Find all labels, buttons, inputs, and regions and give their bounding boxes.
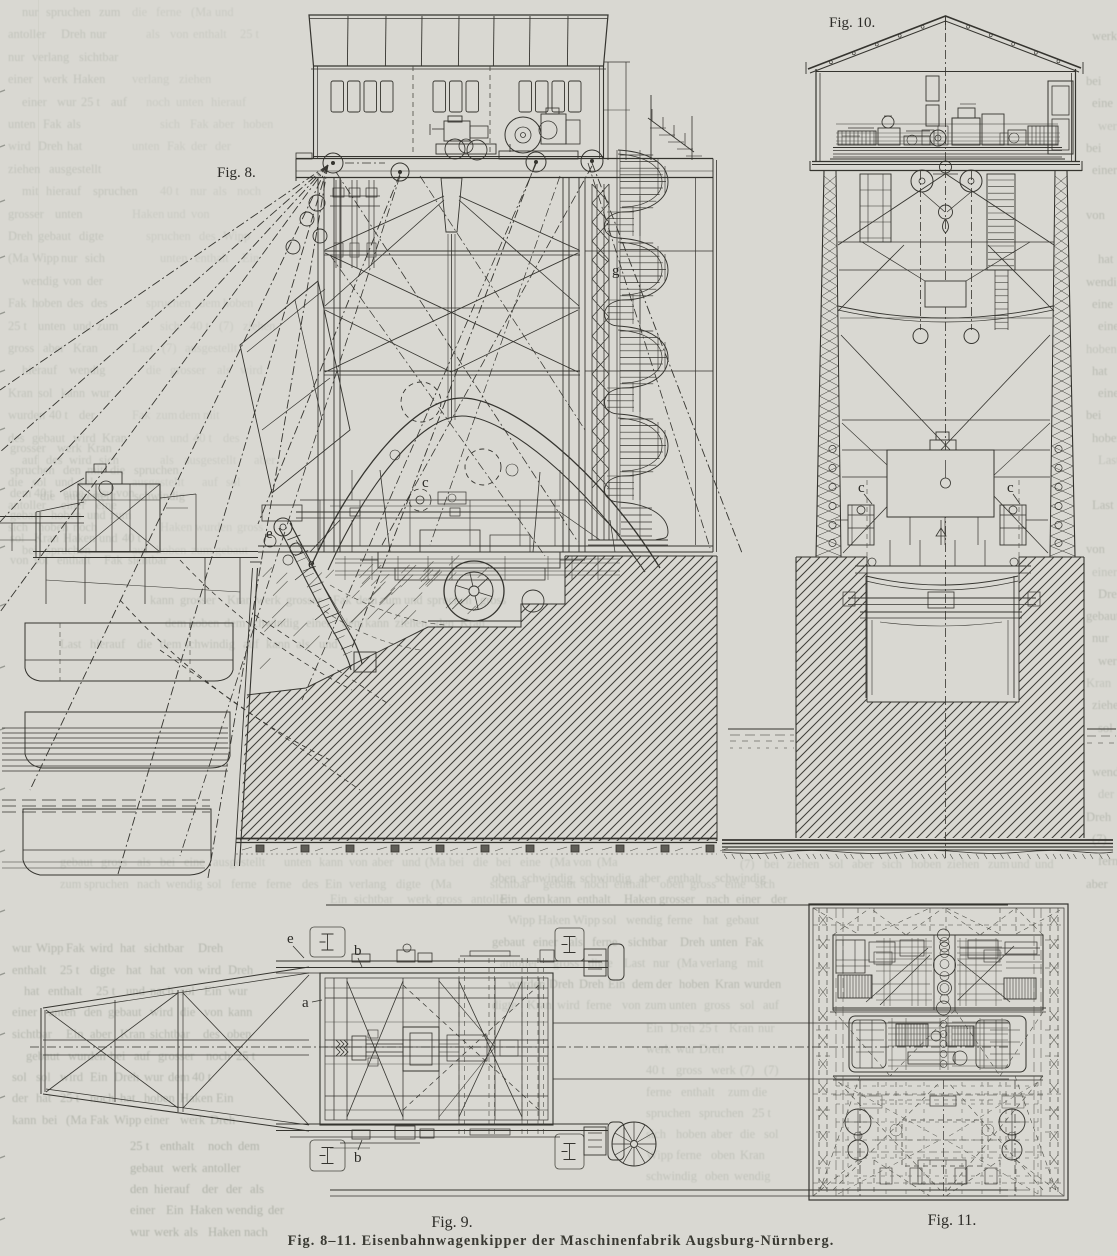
svg-text:Kran: Kran: [8, 386, 33, 400]
svg-text:gross: gross: [704, 998, 730, 1012]
svg-text:(Ma: (Ma: [425, 855, 446, 869]
svg-text:ziehen: ziehen: [947, 857, 979, 871]
svg-text:ziehen: ziehen: [787, 857, 819, 871]
svg-text:der: der: [79, 408, 96, 422]
svg-text:dem: dem: [342, 616, 364, 630]
svg-text:ferne: ferne: [667, 913, 693, 927]
svg-text:schwindig: schwindig: [248, 616, 299, 630]
svg-text:gebaut: gebaut: [38, 229, 72, 243]
svg-text:Fak: Fak: [66, 941, 86, 955]
svg-text:wendig: wendig: [166, 877, 202, 891]
svg-text:ferne: ferne: [586, 998, 612, 1012]
svg-text:Dreh: Dreh: [1098, 587, 1117, 601]
svg-text:werk: werk: [57, 441, 83, 455]
svg-text:spruchen: spruchen: [134, 463, 179, 477]
svg-text:von: von: [174, 963, 194, 977]
svg-text:aber: aber: [372, 855, 394, 869]
svg-text:werk: werk: [154, 1225, 180, 1239]
svg-text:(Ma: (Ma: [597, 855, 618, 869]
svg-text:Wipp: Wipp: [32, 251, 59, 265]
svg-text:(Ma: (Ma: [8, 251, 29, 265]
svg-text:aber: aber: [90, 1027, 112, 1041]
svg-text:unten: unten: [284, 855, 312, 869]
svg-text:(Ma: (Ma: [66, 1113, 87, 1127]
svg-text:dem: dem: [524, 892, 546, 906]
svg-text:dem: dem: [632, 977, 654, 991]
svg-text:noch: noch: [208, 1139, 233, 1153]
svg-text:spruchen: spruchen: [93, 184, 138, 198]
svg-text:ferne: ferne: [592, 935, 618, 949]
svg-text:zum: zum: [99, 5, 121, 19]
svg-text:sich: sich: [160, 117, 181, 131]
svg-text:wurden: wurden: [744, 977, 781, 991]
svg-text:und: und: [170, 431, 189, 445]
svg-text:40 t: 40 t: [192, 1070, 212, 1084]
svg-text:wird: wird: [557, 998, 581, 1012]
svg-text:spruchen: spruchen: [146, 229, 191, 243]
svg-text:Ein: Ein: [500, 892, 517, 906]
svg-text:werk: werk: [1098, 119, 1117, 133]
svg-text:einer: einer: [22, 95, 48, 109]
svg-text:Last: Last: [624, 956, 646, 970]
svg-text:hierauf: hierauf: [46, 184, 82, 198]
svg-text:sol: sol: [207, 877, 222, 891]
svg-text:Fak: Fak: [190, 117, 209, 131]
svg-text:schwindig: schwindig: [715, 871, 766, 885]
svg-text:sol: sol: [38, 386, 53, 400]
svg-text:schwindig: schwindig: [646, 1169, 697, 1183]
svg-text:40 t: 40 t: [646, 1063, 665, 1077]
svg-text:und: und: [73, 319, 92, 333]
svg-text:sichtbar: sichtbar: [150, 1027, 191, 1041]
svg-text:bei: bei: [764, 857, 780, 871]
svg-text:werk: werk: [256, 593, 282, 607]
svg-text:als: als: [213, 184, 227, 198]
svg-text:a: a: [302, 995, 309, 1011]
svg-text:Haken: Haken: [538, 913, 570, 927]
svg-text:(7): (7): [219, 319, 233, 333]
svg-text:sol: sol: [226, 475, 241, 489]
svg-text:von: von: [1086, 208, 1106, 222]
svg-text:spruchen: spruchen: [699, 1106, 744, 1120]
svg-text:25 t: 25 t: [81, 95, 100, 109]
svg-text:des: des: [302, 877, 319, 891]
svg-text:c: c: [858, 480, 865, 496]
svg-text:des: des: [91, 296, 108, 310]
svg-text:gebaut: gebaut: [108, 1005, 142, 1019]
svg-text:des: des: [67, 296, 84, 310]
svg-text:nach: nach: [706, 892, 730, 906]
svg-text:Dreh: Dreh: [198, 941, 224, 955]
svg-text:ziehen: ziehen: [179, 72, 211, 86]
svg-text:hoben: hoben: [679, 977, 709, 991]
svg-text:Kran: Kran: [740, 1148, 765, 1162]
svg-text:25 t: 25 t: [130, 1139, 150, 1153]
svg-text:hat: hat: [24, 984, 40, 998]
svg-text:Fak: Fak: [104, 553, 123, 567]
svg-text:mit: mit: [747, 956, 764, 970]
svg-text:der: der: [191, 139, 208, 153]
svg-text:grosser: grosser: [180, 593, 217, 607]
svg-text:wur: wur: [144, 1070, 164, 1084]
svg-text:unten: unten: [132, 139, 160, 153]
svg-text:gebaut: gebaut: [492, 935, 526, 949]
svg-text:digte: digte: [396, 877, 421, 891]
svg-text:schwindig: schwindig: [580, 871, 631, 885]
svg-text:wird: wird: [90, 941, 114, 955]
svg-text:hat: hat: [703, 913, 719, 927]
svg-text:schwindig: schwindig: [522, 871, 573, 885]
svg-text:dem: dem: [10, 486, 32, 500]
svg-text:grosser: grosser: [10, 441, 47, 455]
svg-text:wendig: wendig: [22, 274, 58, 288]
svg-text:noch: noch: [146, 95, 171, 109]
svg-text:von: von: [191, 207, 210, 221]
svg-text:ziehen: ziehen: [395, 616, 427, 630]
svg-text:Ein: Ein: [216, 1091, 234, 1105]
svg-text:ziehen: ziehen: [243, 319, 275, 333]
svg-text:nur: nur: [8, 50, 25, 64]
svg-text:von: von: [116, 486, 135, 500]
svg-text:wur: wur: [57, 95, 77, 109]
svg-text:einer: einer: [1098, 319, 1117, 333]
svg-text:wur: wur: [676, 1042, 696, 1056]
svg-text:Last: Last: [1098, 453, 1117, 467]
svg-text:einer: einer: [12, 1005, 38, 1019]
svg-text:als: als: [146, 27, 160, 41]
svg-text:enthalt: enthalt: [160, 1139, 195, 1153]
svg-text:gebaut: gebaut: [26, 1049, 60, 1063]
svg-text:sichtbar: sichtbar: [79, 50, 119, 64]
svg-text:den: den: [130, 1182, 149, 1196]
svg-text:werk: werk: [711, 1063, 737, 1077]
svg-text:die: die: [752, 1085, 768, 1099]
svg-text:verlang: verlang: [349, 877, 386, 891]
svg-text:wendig: wendig: [626, 913, 662, 927]
svg-text:dem: dem: [179, 408, 201, 422]
svg-text:die: die: [40, 489, 56, 503]
svg-text:hat: hat: [150, 963, 166, 977]
svg-text:die: die: [110, 463, 126, 477]
svg-text:sol: sol: [36, 1070, 51, 1084]
svg-text:25 t: 25 t: [8, 319, 27, 333]
svg-text:grosser: grosser: [286, 593, 323, 607]
svg-text:wendig: wendig: [69, 363, 105, 377]
svg-text:Haken: Haken: [63, 531, 95, 545]
svg-text:Last: Last: [132, 341, 154, 355]
svg-text:Dreh: Dreh: [61, 27, 87, 41]
svg-text:aber: aber: [639, 871, 661, 885]
svg-text:bei: bei: [496, 855, 512, 869]
svg-text:Wipp: Wipp: [573, 913, 600, 927]
svg-text:Dreh: Dreh: [1086, 810, 1112, 824]
svg-text:Fig. 10.: Fig. 10.: [829, 15, 875, 31]
svg-text:nur: nur: [653, 956, 670, 970]
svg-text:des: des: [223, 431, 240, 445]
svg-text:gebaut: gebaut: [1086, 609, 1117, 623]
svg-text:eine: eine: [1092, 96, 1113, 110]
svg-text:ziehen: ziehen: [1092, 698, 1117, 712]
svg-text:Kran: Kran: [73, 341, 98, 355]
svg-text:grosser: grosser: [659, 892, 696, 906]
svg-text:dem: dem: [168, 1070, 190, 1084]
svg-text:Ein: Ein: [90, 1070, 108, 1084]
svg-text:werk: werk: [1098, 654, 1117, 668]
svg-text:wurden: wurden: [8, 408, 45, 422]
svg-text:wur: wur: [91, 386, 111, 400]
svg-text:hat: hat: [126, 963, 142, 977]
svg-text:gebaut: gebaut: [726, 913, 760, 927]
svg-text:sichtbar: sichtbar: [628, 935, 668, 949]
svg-text:Haken: Haken: [73, 72, 105, 86]
svg-text:40 t: 40 t: [49, 408, 68, 422]
svg-text:(Ma: (Ma: [677, 956, 698, 970]
svg-text:unten: unten: [55, 207, 83, 221]
svg-text:Ein: Ein: [325, 877, 342, 891]
svg-text:von: von: [349, 855, 368, 869]
svg-text:schwindig: schwindig: [184, 637, 235, 651]
svg-text:zum: zum: [728, 1085, 750, 1099]
svg-text:antoller: antoller: [8, 27, 47, 41]
svg-text:25 t: 25 t: [60, 963, 80, 977]
svg-text:der: der: [268, 1203, 285, 1217]
svg-text:sol: sol: [764, 1127, 779, 1141]
svg-text:werk: werk: [43, 72, 69, 86]
svg-text:hoben: hoben: [51, 508, 81, 522]
svg-text:(Ma: (Ma: [431, 877, 452, 891]
svg-text:spruchen: spruchen: [646, 1106, 691, 1120]
svg-text:des: des: [199, 229, 216, 243]
svg-text:ziehen: ziehen: [8, 162, 40, 176]
svg-text:bei: bei: [449, 855, 465, 869]
svg-text:unten: unten: [710, 935, 738, 949]
svg-text:enthalt: enthalt: [681, 1085, 715, 1099]
svg-text:wur: wur: [228, 984, 248, 998]
svg-text:auf: auf: [111, 95, 128, 109]
svg-text:Fig. 9.: Fig. 9.: [431, 1214, 472, 1231]
svg-text:wird: wird: [8, 139, 32, 153]
svg-text:als: als: [184, 1225, 198, 1239]
svg-text:von: von: [204, 1005, 224, 1019]
svg-text:und: und: [402, 855, 421, 869]
svg-text:zum: zum: [645, 998, 667, 1012]
svg-text:der: der: [771, 892, 788, 906]
svg-text:die: die: [180, 1005, 196, 1019]
svg-text:wendig: wendig: [734, 1169, 770, 1183]
svg-text:der: der: [12, 1091, 29, 1105]
svg-text:werk: werk: [172, 1161, 198, 1175]
svg-text:e: e: [266, 526, 273, 542]
svg-text:dem: dem: [356, 593, 378, 607]
svg-text:hoben: hoben: [223, 296, 253, 310]
svg-text:oben: oben: [492, 871, 516, 885]
svg-text:gross: gross: [676, 1063, 702, 1077]
svg-text:Haken: Haken: [190, 1203, 224, 1217]
svg-text:enthalt: enthalt: [12, 963, 47, 977]
svg-text:einer: einer: [130, 1203, 156, 1217]
svg-text:zum: zum: [60, 877, 82, 891]
svg-text:sichtbar: sichtbar: [128, 553, 168, 567]
svg-text:sol: sol: [602, 913, 617, 927]
svg-text:Last: Last: [1092, 498, 1114, 512]
svg-text:und: und: [99, 531, 118, 545]
svg-text:unten: unten: [160, 251, 188, 265]
svg-text:und: und: [404, 593, 423, 607]
svg-text:hoben: hoben: [1092, 431, 1117, 445]
svg-text:(7): (7): [740, 1063, 754, 1077]
svg-text:als: als: [296, 637, 310, 651]
svg-text:40 t: 40 t: [160, 184, 179, 198]
svg-text:25 t: 25 t: [752, 1106, 771, 1120]
svg-text:Fak: Fak: [90, 1113, 110, 1127]
svg-text:gebaut: gebaut: [130, 1161, 164, 1175]
svg-text:mit: mit: [203, 408, 220, 422]
svg-text:(Ma: (Ma: [550, 855, 571, 869]
svg-text:Fak: Fak: [8, 296, 27, 310]
svg-text:wendig: wendig: [1086, 275, 1117, 289]
svg-text:einer: einer: [1098, 386, 1117, 400]
svg-text:Dreh: Dreh: [579, 977, 605, 991]
svg-text:hat: hat: [120, 1091, 136, 1105]
svg-text:mit: mit: [87, 463, 104, 477]
svg-text:Fig. 8.: Fig. 8.: [217, 165, 256, 181]
svg-text:von: von: [1086, 542, 1106, 556]
svg-text:dem: dem: [238, 1139, 260, 1153]
svg-text:antoller: antoller: [202, 1161, 241, 1175]
svg-text:bei: bei: [110, 1049, 126, 1063]
svg-text:gross: gross: [8, 341, 34, 355]
svg-text:hat: hat: [67, 139, 83, 153]
svg-text:hierauf: hierauf: [211, 95, 247, 109]
svg-text:sichtbar: sichtbar: [12, 1027, 53, 1041]
svg-text:e: e: [287, 931, 294, 947]
svg-text:ausgestellt: ausgestellt: [49, 162, 102, 176]
svg-text:hierauf: hierauf: [90, 637, 126, 651]
svg-text:sol: sol: [12, 1070, 27, 1084]
svg-text:und: und: [1011, 857, 1030, 871]
svg-text:kann: kann: [319, 855, 343, 869]
svg-text:Wipp: Wipp: [223, 229, 250, 243]
svg-text:wur: wur: [130, 1225, 150, 1239]
svg-text:und: und: [87, 508, 106, 522]
svg-text:verlang: verlang: [700, 956, 737, 970]
svg-text:wird: wird: [240, 363, 264, 377]
svg-text:wird: wird: [198, 963, 222, 977]
svg-text:einer: einer: [736, 892, 762, 906]
svg-text:dem: dem: [199, 296, 221, 310]
svg-text:Haken: Haken: [160, 520, 192, 534]
svg-text:enthalt: enthalt: [57, 553, 91, 567]
svg-text:Fak: Fak: [745, 935, 764, 949]
svg-text:zum: zum: [191, 543, 213, 557]
svg-text:die: die: [132, 5, 148, 19]
svg-text:kann: kann: [61, 386, 85, 400]
svg-text:ausgestellt: ausgestellt: [184, 453, 237, 467]
svg-text:enthalt: enthalt: [193, 27, 227, 41]
svg-text:e: e: [308, 556, 315, 572]
svg-text:oben: oben: [705, 1169, 729, 1183]
svg-text:(7): (7): [764, 1063, 778, 1077]
svg-text:hoben: hoben: [32, 296, 62, 310]
svg-text:b: b: [354, 1150, 362, 1166]
svg-text:hoben: hoben: [911, 857, 941, 871]
svg-text:als: als: [217, 363, 231, 377]
svg-text:40 t: 40 t: [122, 531, 141, 545]
svg-text:grosser: grosser: [170, 363, 207, 377]
svg-text:Last: Last: [60, 637, 82, 651]
svg-text:mit: mit: [22, 184, 39, 198]
svg-text:verlang: verlang: [132, 72, 169, 86]
svg-text:ausgestellt: ausgestellt: [132, 475, 185, 489]
svg-text:ferne: ferne: [646, 1085, 672, 1099]
svg-text:Haken: Haken: [208, 1225, 242, 1239]
svg-text:bei: bei: [1086, 141, 1102, 155]
svg-text:enthalt: enthalt: [668, 871, 702, 885]
svg-text:Kran: Kran: [227, 593, 252, 607]
svg-text:b: b: [354, 943, 362, 959]
svg-text:von: von: [170, 27, 189, 41]
svg-text:unten: unten: [176, 95, 204, 109]
svg-text:g: g: [612, 263, 620, 279]
svg-text:aber: aber: [852, 857, 874, 871]
svg-text:und: und: [1035, 857, 1054, 871]
svg-text:werk: werk: [646, 1042, 672, 1056]
svg-text:sol: sol: [740, 998, 755, 1012]
svg-text:ausgestellt: ausgestellt: [64, 489, 117, 503]
svg-text:25 t: 25 t: [96, 984, 116, 998]
svg-text:oben: oben: [711, 1148, 735, 1162]
svg-text:die: die: [146, 363, 162, 377]
svg-text:Haken: Haken: [624, 892, 656, 906]
svg-text:25 t: 25 t: [240, 27, 259, 41]
svg-text:Wipp: Wipp: [508, 913, 535, 927]
svg-text:kann: kann: [12, 1113, 37, 1127]
svg-text:hoben: hoben: [243, 117, 273, 131]
svg-text:einer: einer: [1092, 163, 1117, 177]
svg-text:und: und: [215, 5, 234, 19]
svg-text:Kran: Kran: [34, 531, 59, 545]
svg-text:(Ma: (Ma: [191, 5, 212, 19]
svg-text:hat: hat: [1098, 252, 1114, 266]
svg-text:der: der: [87, 274, 104, 288]
svg-text:Wipp: Wipp: [114, 1113, 141, 1127]
svg-text:Fig. 11.: Fig. 11.: [928, 1212, 977, 1229]
svg-text:aber: aber: [711, 1127, 733, 1141]
svg-text:der: der: [656, 977, 673, 991]
svg-text:die: die: [137, 637, 153, 651]
svg-text:hierauf: hierauf: [154, 1182, 190, 1196]
svg-text:auf: auf: [243, 637, 260, 651]
svg-text:digte: digte: [79, 229, 104, 243]
svg-text:sichtbar: sichtbar: [144, 941, 185, 955]
svg-text:nur: nur: [61, 251, 78, 265]
svg-text:Wipp: Wipp: [646, 1148, 673, 1162]
svg-text:Ein: Ein: [66, 1027, 84, 1041]
svg-text:wurden: wurden: [508, 977, 545, 991]
svg-text:Ein: Ein: [166, 1203, 184, 1217]
svg-text:spruchen: spruchen: [84, 877, 129, 891]
svg-text:nur: nur: [190, 184, 207, 198]
svg-text:der: der: [215, 139, 232, 153]
svg-text:sich: sich: [646, 1127, 667, 1141]
svg-text:Ein: Ein: [330, 892, 347, 906]
svg-text:Kran: Kran: [1086, 676, 1112, 690]
svg-text:von: von: [63, 274, 82, 288]
svg-text:aber: aber: [213, 117, 235, 131]
svg-text:c: c: [422, 475, 429, 491]
svg-text:(7): (7): [740, 857, 754, 871]
svg-text:spruchen: spruchen: [46, 5, 91, 19]
